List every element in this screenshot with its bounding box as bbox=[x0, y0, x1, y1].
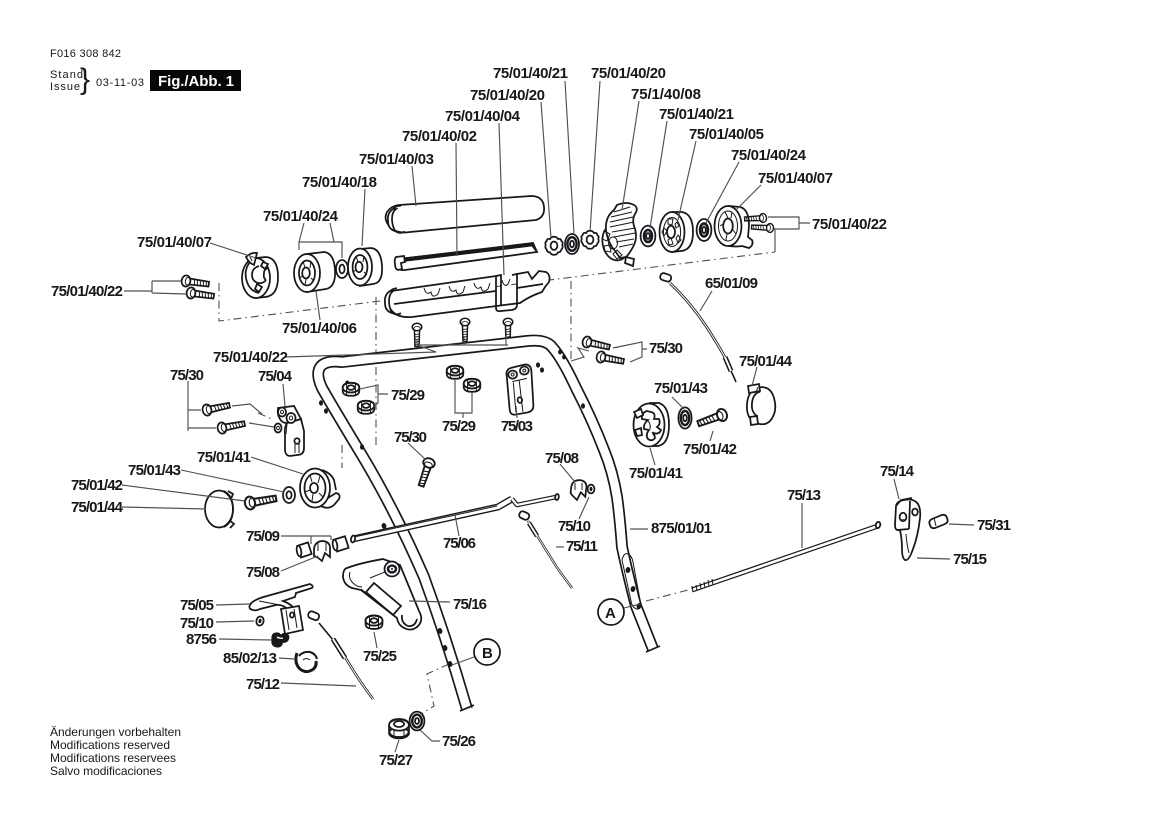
svg-text:75/01/40/03: 75/01/40/03 bbox=[359, 151, 434, 168]
svg-text:75/01/40/02: 75/01/40/02 bbox=[402, 128, 477, 145]
svg-text:Modifications reservees: Modifications reservees bbox=[50, 751, 176, 765]
svg-text:75/16: 75/16 bbox=[453, 596, 487, 613]
svg-text:75/1/40/08: 75/1/40/08 bbox=[631, 86, 701, 103]
svg-text:75/01/40/06: 75/01/40/06 bbox=[282, 320, 357, 337]
svg-text:75/15: 75/15 bbox=[953, 551, 987, 568]
svg-text:75/11: 75/11 bbox=[566, 538, 598, 555]
svg-text:75/25: 75/25 bbox=[363, 648, 397, 665]
svg-text:75/09: 75/09 bbox=[246, 528, 280, 545]
svg-text:75/01/40/21: 75/01/40/21 bbox=[493, 65, 568, 82]
svg-text:75/01/42: 75/01/42 bbox=[683, 441, 737, 458]
svg-text:75/01/41: 75/01/41 bbox=[629, 465, 683, 482]
svg-text:75/30: 75/30 bbox=[394, 429, 427, 446]
svg-text:75/01/40/22: 75/01/40/22 bbox=[213, 349, 288, 366]
svg-text:75/01/44: 75/01/44 bbox=[71, 499, 124, 516]
svg-text:75/05: 75/05 bbox=[180, 597, 214, 614]
svg-text:75/01/43: 75/01/43 bbox=[128, 462, 181, 479]
svg-text:75/01/40/22: 75/01/40/22 bbox=[812, 216, 887, 233]
svg-text:75/01/43: 75/01/43 bbox=[654, 380, 708, 397]
svg-text:75/08: 75/08 bbox=[246, 564, 280, 581]
svg-text:75/13: 75/13 bbox=[787, 487, 821, 504]
svg-text:}: } bbox=[80, 63, 90, 96]
svg-text:85/02/13: 85/02/13 bbox=[223, 650, 277, 667]
svg-text:8756: 8756 bbox=[186, 631, 217, 648]
svg-text:75/01/40/07: 75/01/40/07 bbox=[758, 170, 833, 187]
svg-text:75/01/40/22: 75/01/40/22 bbox=[51, 283, 123, 300]
svg-text:75/01/40/21: 75/01/40/21 bbox=[659, 106, 734, 123]
svg-text:F016 308 842: F016 308 842 bbox=[50, 48, 121, 60]
svg-text:75/04: 75/04 bbox=[258, 368, 293, 385]
svg-text:Issue: Issue bbox=[50, 81, 80, 93]
svg-text:75/01/40/20: 75/01/40/20 bbox=[591, 65, 666, 82]
svg-text:Stand: Stand bbox=[50, 69, 83, 81]
svg-text:75/01/40/04: 75/01/40/04 bbox=[445, 108, 521, 125]
svg-text:75/01/40/05: 75/01/40/05 bbox=[689, 126, 764, 143]
svg-text:Modifications reserved: Modifications reserved bbox=[50, 738, 170, 752]
svg-text:75/01/40/20: 75/01/40/20 bbox=[470, 87, 545, 104]
svg-text:75/30: 75/30 bbox=[649, 340, 683, 357]
svg-text:Änderungen vorbehalten: Änderungen vorbehalten bbox=[50, 725, 181, 739]
svg-text:75/10: 75/10 bbox=[558, 518, 591, 535]
svg-text:75/10: 75/10 bbox=[180, 615, 214, 632]
svg-text:Fig./Abb. 1: Fig./Abb. 1 bbox=[158, 73, 234, 90]
svg-text:75/01/40/24: 75/01/40/24 bbox=[263, 208, 339, 225]
svg-text:75/01/40/07: 75/01/40/07 bbox=[137, 234, 212, 251]
svg-text:B: B bbox=[482, 645, 493, 662]
svg-text:75/03: 75/03 bbox=[501, 418, 533, 435]
svg-text:Salvo modificaciones: Salvo modificaciones bbox=[50, 764, 162, 778]
svg-text:75/01/41: 75/01/41 bbox=[197, 449, 251, 466]
svg-text:75/01/44: 75/01/44 bbox=[739, 353, 793, 370]
svg-text:A: A bbox=[605, 605, 616, 622]
svg-text:65/01/09: 65/01/09 bbox=[705, 275, 758, 292]
svg-text:03-11-03: 03-11-03 bbox=[96, 77, 144, 89]
svg-text:75/26: 75/26 bbox=[442, 733, 476, 750]
svg-text:875/01/01: 875/01/01 bbox=[651, 520, 712, 537]
svg-text:75/01/42: 75/01/42 bbox=[71, 477, 123, 494]
svg-text:75/14: 75/14 bbox=[880, 463, 915, 480]
svg-text:75/01/40/24: 75/01/40/24 bbox=[731, 147, 807, 164]
svg-text:75/01/40/18: 75/01/40/18 bbox=[302, 174, 377, 191]
svg-text:75/06: 75/06 bbox=[443, 535, 476, 552]
svg-text:75/30: 75/30 bbox=[170, 367, 204, 384]
svg-text:75/31: 75/31 bbox=[977, 517, 1011, 534]
svg-text:75/27: 75/27 bbox=[379, 752, 413, 769]
svg-text:75/12: 75/12 bbox=[246, 676, 280, 693]
svg-text:75/08: 75/08 bbox=[545, 450, 579, 467]
svg-text:75/29: 75/29 bbox=[442, 418, 476, 435]
svg-text:75/29: 75/29 bbox=[391, 387, 425, 404]
